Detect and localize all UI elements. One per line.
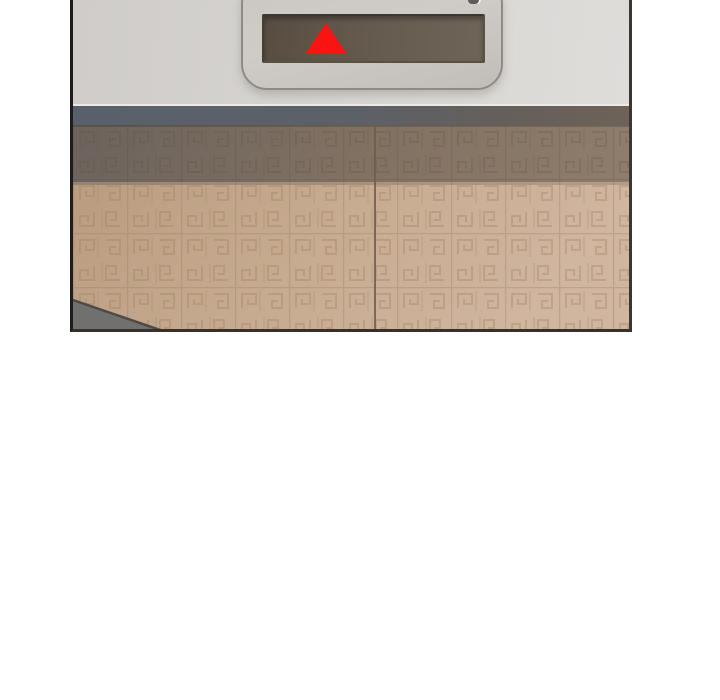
comic-page: [0, 0, 720, 700]
comic-panel: [70, 0, 632, 332]
door-shadow-overlay: [73, 125, 629, 182]
up-triangle-icon: [305, 23, 347, 54]
elevator-upper-wall: [73, 0, 629, 106]
door-shadow-fade: [73, 182, 629, 185]
door-shadow-top-line: [73, 125, 629, 127]
lintel-band: [73, 106, 629, 125]
elevator-doors: [73, 106, 629, 329]
floor-indicator-plate: [241, 0, 503, 90]
indicator-screen: [262, 14, 485, 63]
